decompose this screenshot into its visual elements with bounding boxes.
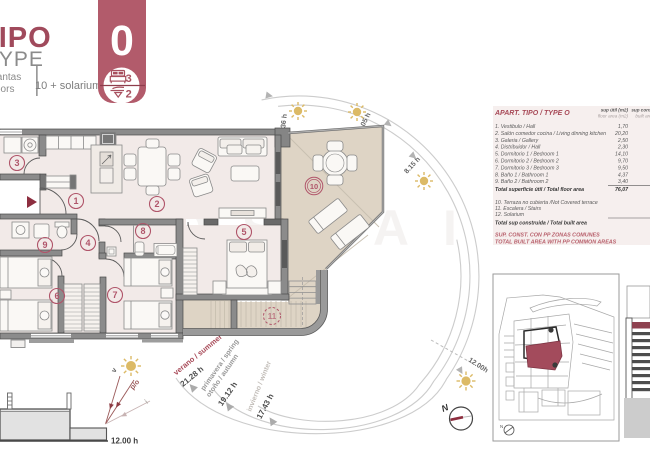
svg-text:APART. TIPO / TYPE O: APART. TIPO / TYPE O (494, 110, 570, 117)
svg-text:2,30: 2,30 (617, 145, 628, 151)
svg-text:Total superficie útil / Total: Total superficie útil / Total floor area (495, 187, 584, 193)
svg-text:1,70: 1,70 (618, 124, 628, 130)
svg-text:10: 10 (310, 182, 318, 191)
svg-text:plantas: plantas (0, 72, 21, 83)
svg-text:9: 9 (42, 240, 47, 250)
svg-text:9,70: 9,70 (618, 159, 628, 165)
svg-text:2,50: 2,50 (617, 138, 628, 144)
svg-text:1: 1 (73, 196, 78, 206)
svg-text:12. Solarium: 12. Solarium (495, 212, 525, 218)
svg-text:9,50: 9,50 (618, 165, 628, 171)
svg-text:sup útil (m2): sup útil (m2) (601, 108, 629, 113)
svg-text:4. Distribuidor / Hall: 4. Distribuidor / Hall (495, 145, 541, 151)
svg-text:5. Dormitorio 1 / Bedroom 1: 5. Dormitorio 1 / Bedroom 1 (495, 152, 559, 158)
svg-text:11: 11 (268, 312, 277, 321)
svg-text:floors: floors (0, 84, 14, 95)
svg-text:7: 7 (112, 290, 117, 300)
svg-text:14,10: 14,10 (615, 152, 628, 158)
svg-text:SUP. CONST. CON PP ZONAS COMUN: SUP. CONST. CON PP ZONAS COMUNES (495, 233, 600, 239)
svg-text:N: N (500, 424, 503, 429)
svg-text:TOTAL BUILT AREA WITH PP COMMO: TOTAL BUILT AREA WITH PP COMMON AREAS (495, 240, 617, 246)
svg-text:3: 3 (14, 158, 19, 168)
svg-text:9. Baño 2 / Bathroom 2: 9. Baño 2 / Bathroom 2 (495, 179, 548, 185)
svg-text:floor area (m2): floor area (m2) (598, 114, 629, 119)
svg-text:20,20: 20,20 (614, 131, 628, 137)
svg-text:3,40: 3,40 (618, 179, 628, 185)
svg-text:1. Vestibulo / Hall: 1. Vestibulo / Hall (495, 124, 536, 130)
svg-text:0: 0 (110, 17, 134, 65)
svg-text:built area (m2): built area (m2) (635, 114, 650, 119)
svg-text:6: 6 (54, 291, 59, 301)
svg-text:7. Dormitorio 3 / Bedroom 3: 7. Dormitorio 3 / Bedroom 3 (495, 165, 559, 171)
svg-text:3. Galeria / Gallery: 3. Galeria / Gallery (495, 138, 539, 144)
svg-text:4: 4 (85, 238, 90, 248)
svg-text:4,37: 4,37 (618, 172, 629, 178)
svg-text:2: 2 (154, 199, 159, 209)
svg-text:10 + solarium: 10 + solarium (35, 80, 101, 92)
svg-text:8. Baño 1 / Bathroom 1: 8. Baño 1 / Bathroom 1 (495, 172, 548, 178)
svg-text:3: 3 (126, 73, 132, 85)
svg-text:sup const (m2): sup const (m2) (631, 108, 650, 113)
svg-text:2: 2 (126, 89, 132, 101)
svg-text:76,07: 76,07 (615, 187, 629, 193)
svg-text:Total sup construida / Total b: Total sup construida / Total built area (495, 221, 587, 227)
svg-text:12.00 h: 12.00 h (111, 437, 138, 446)
svg-text:2. Salón comedor cocina / Livi: 2. Salón comedor cocina / Living dinning… (494, 131, 606, 137)
svg-text:6. Dormitorio 2 / Bedroom 2: 6. Dormitorio 2 / Bedroom 2 (495, 159, 559, 165)
svg-text:5: 5 (241, 227, 246, 237)
svg-text:8: 8 (140, 226, 145, 236)
